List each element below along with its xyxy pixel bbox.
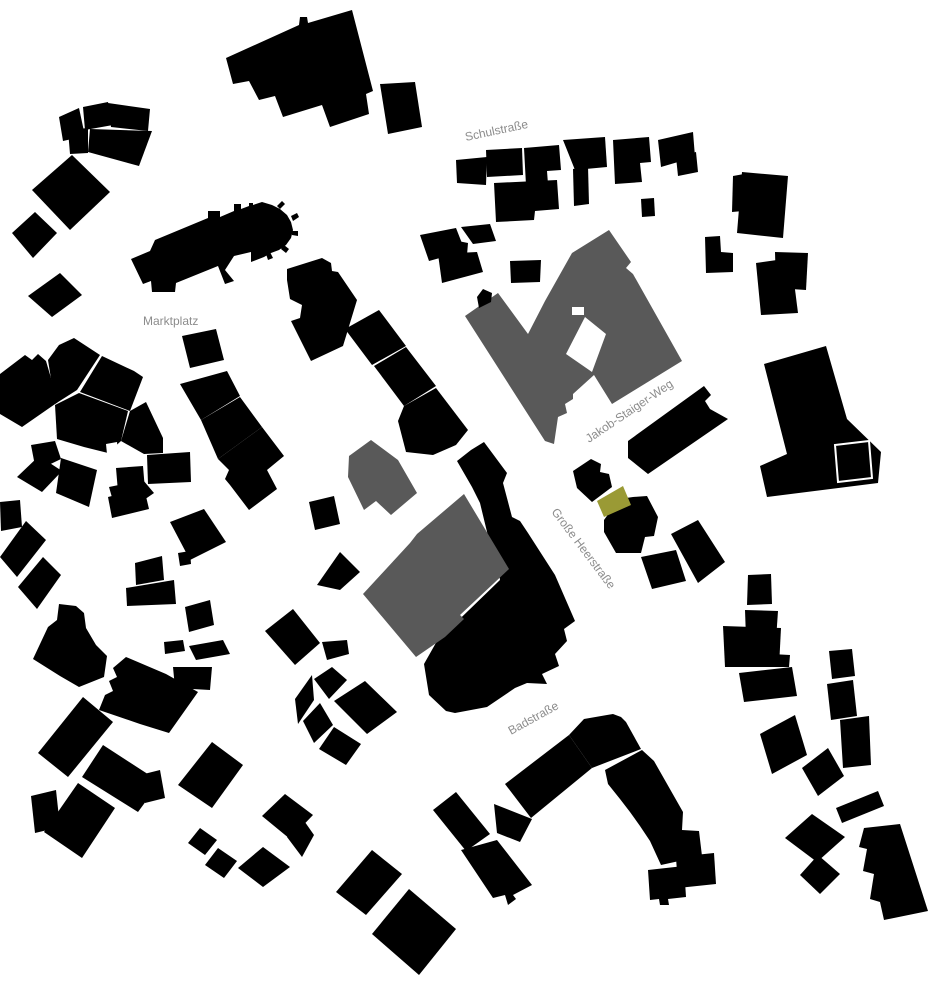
svg-text:Marktplatz: Marktplatz <box>143 314 198 328</box>
